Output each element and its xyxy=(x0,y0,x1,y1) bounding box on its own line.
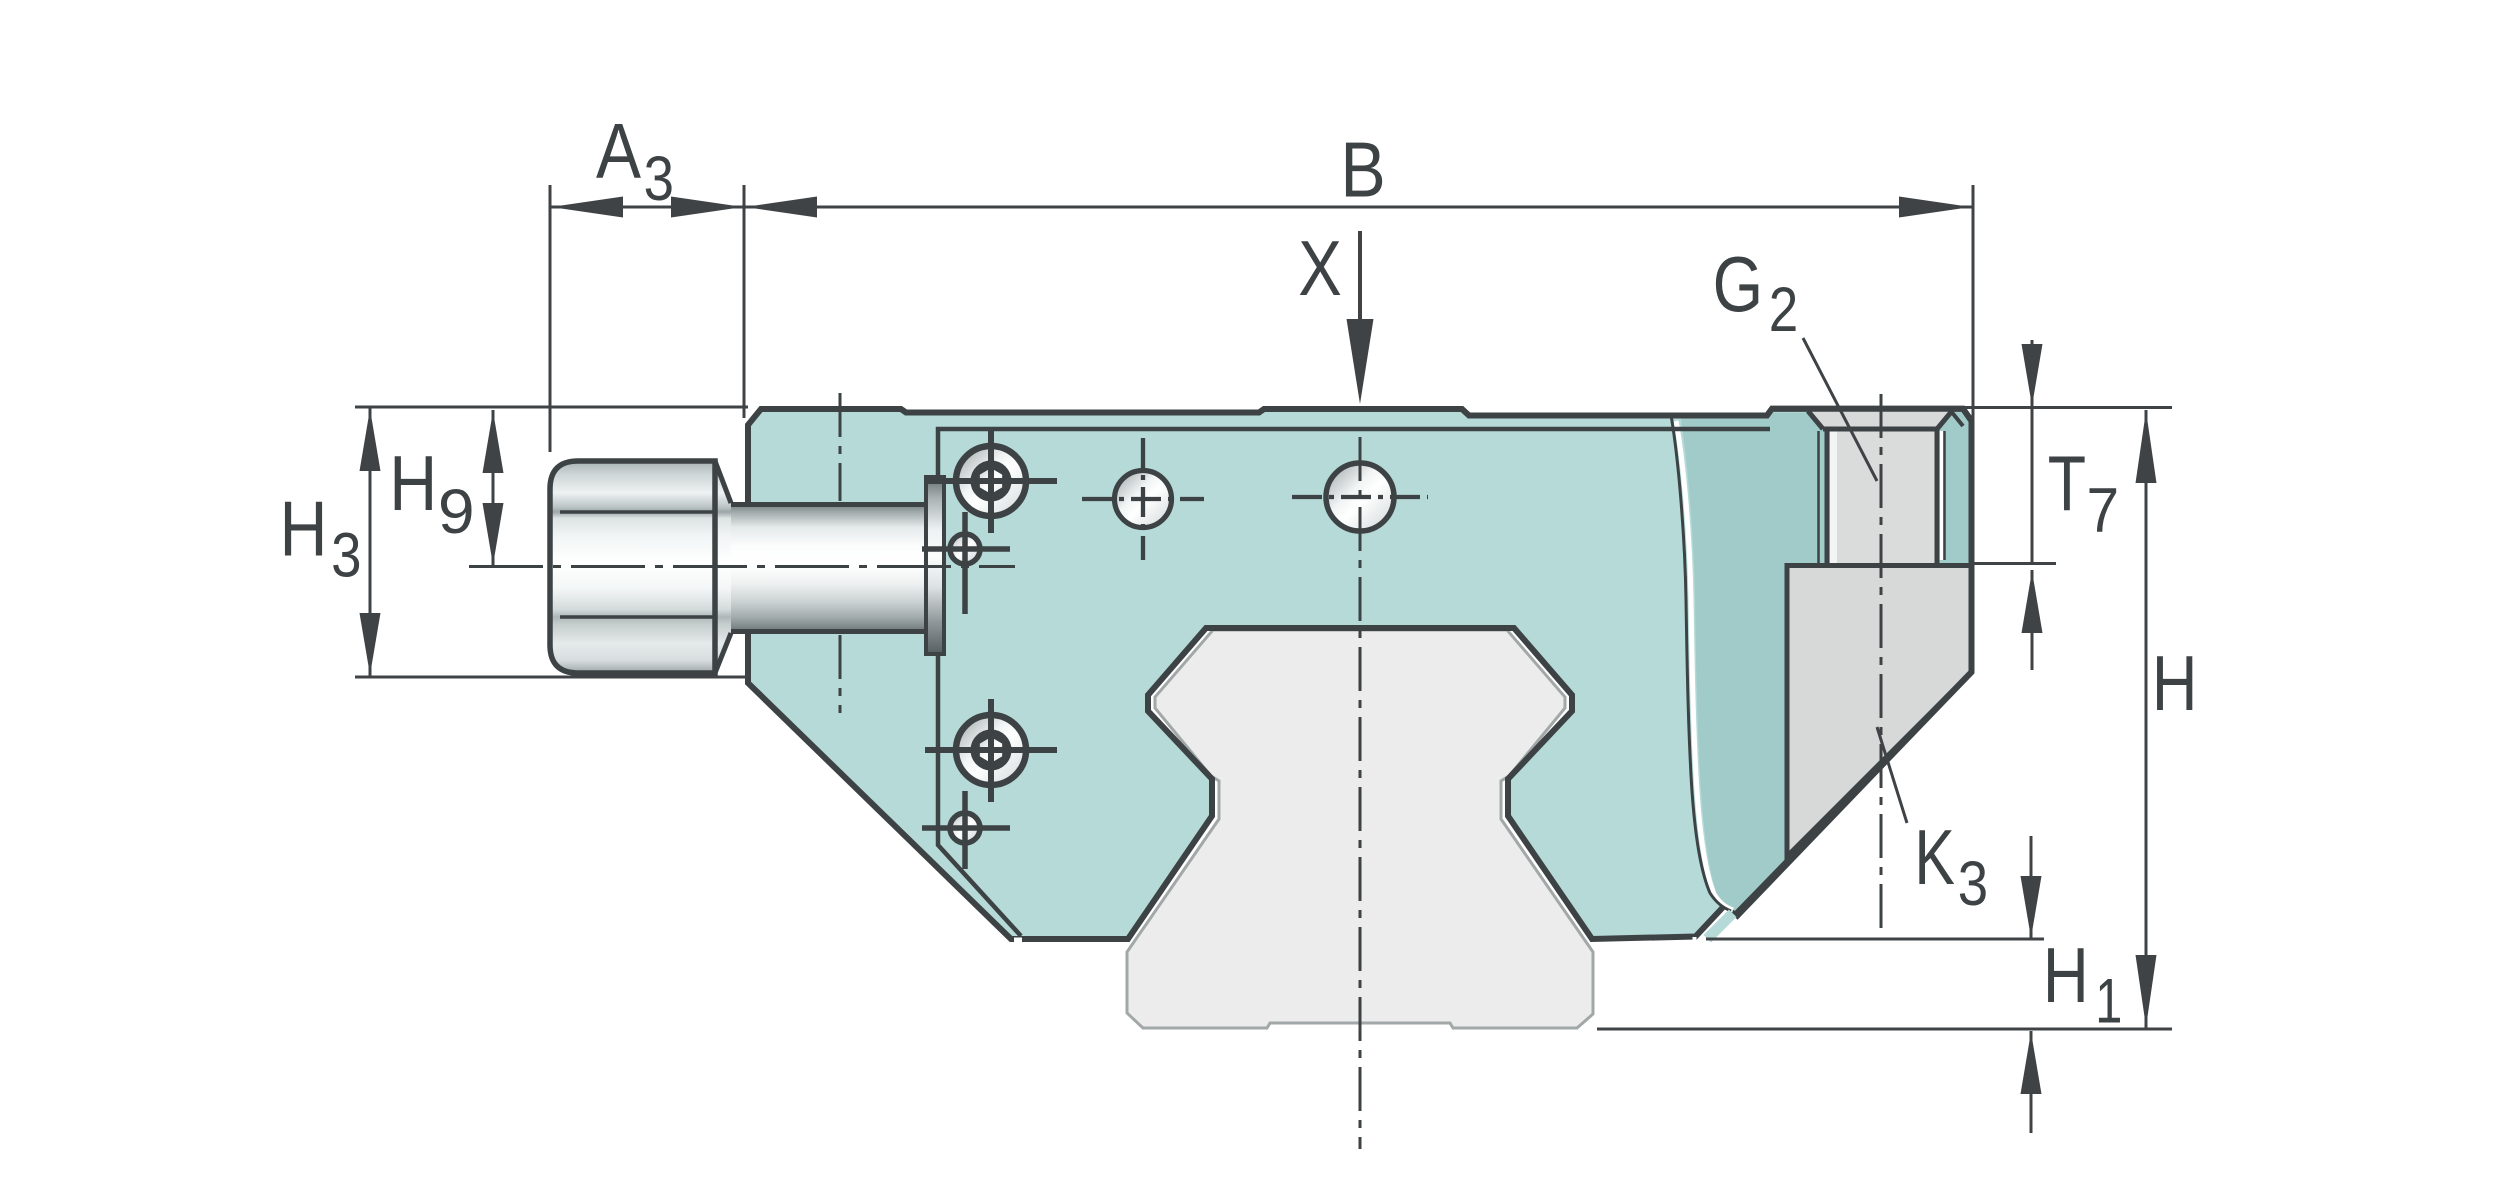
svg-text:2: 2 xyxy=(1769,275,1799,345)
svg-text:X: X xyxy=(1298,224,1342,312)
svg-text:A: A xyxy=(596,107,641,195)
svg-text:3: 3 xyxy=(1958,849,1988,919)
svg-text:T: T xyxy=(2048,439,2086,527)
svg-text:9: 9 xyxy=(438,477,475,547)
svg-text:B: B xyxy=(1340,126,1385,214)
svg-text:3: 3 xyxy=(331,520,361,590)
svg-text:3: 3 xyxy=(644,144,674,214)
svg-text:1: 1 xyxy=(2095,967,2122,1037)
svg-text:H: H xyxy=(2152,639,2198,727)
svg-text:H: H xyxy=(389,439,437,527)
svg-text:H: H xyxy=(2043,931,2089,1019)
svg-text:G: G xyxy=(1713,240,1764,328)
svg-text:K: K xyxy=(1914,813,1955,901)
svg-text:H: H xyxy=(280,485,328,573)
svg-text:7: 7 xyxy=(2087,476,2120,546)
